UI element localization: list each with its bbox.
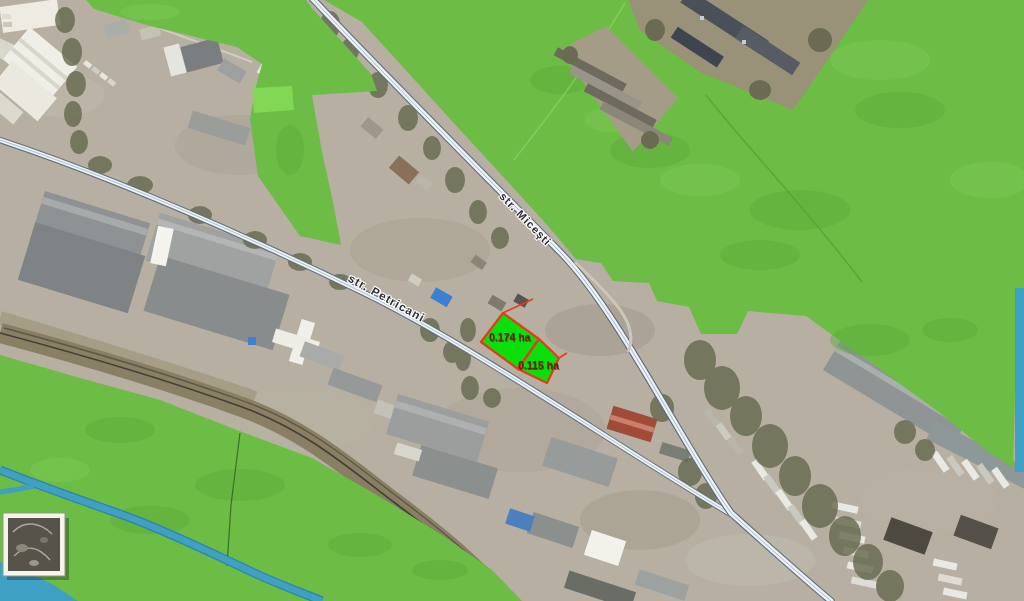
water-strip-east: [1015, 288, 1024, 472]
map-canvas[interactable]: str. Miceşti str. Petricani 0.174 ha 0.1…: [0, 0, 1024, 601]
aerial-basemap: [0, 0, 1024, 601]
parcel-area-label-0115: 0.115 ha: [518, 359, 559, 371]
parcel-area-label-0174: 0.174 ha: [489, 331, 530, 343]
inset-minimap[interactable]: [3, 513, 69, 580]
